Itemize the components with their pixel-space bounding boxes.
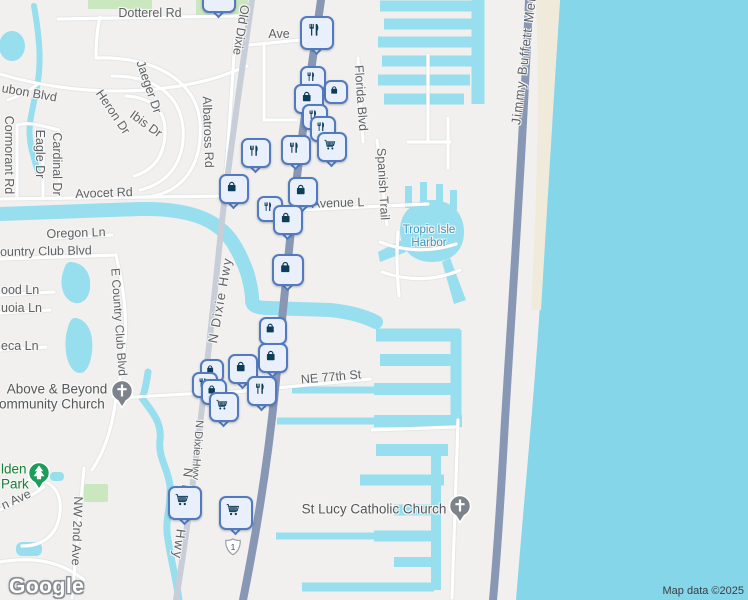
poi-marker-restaurant[interactable]: [241, 138, 271, 168]
marker-card: [273, 205, 303, 235]
marker-card: [209, 392, 239, 422]
waterways-left: [0, 6, 179, 600]
poi-marker-restaurant[interactable]: [247, 376, 277, 406]
church-cross-icon: [110, 396, 134, 413]
google-logo[interactable]: Google: [9, 575, 84, 599]
poi-marker-bag[interactable]: [288, 177, 318, 207]
marker-card: [241, 138, 271, 168]
poi-marker-restaurant[interactable]: [300, 16, 334, 50]
marker-card: [317, 132, 347, 162]
marker-card: [300, 16, 334, 50]
shopping-bag-icon: [225, 180, 244, 199]
pine-tree-icon: [27, 478, 51, 495]
svg-text:1: 1: [231, 542, 236, 552]
poi-marker-cart[interactable]: [219, 496, 253, 530]
restaurant-icon: [253, 382, 272, 401]
restaurant-icon: [247, 144, 266, 163]
marker-card: [247, 376, 277, 406]
poi-marker-bag[interactable]: [259, 317, 287, 345]
shopping-bag-icon: [278, 260, 298, 280]
marker-card: [219, 174, 249, 204]
shopping-bag-icon: [264, 322, 281, 339]
map-base-layer: [0, 0, 748, 600]
church-poi-pin[interactable]: [448, 494, 472, 529]
finger-canals-south: [276, 330, 462, 590]
shopping-bag-icon: [264, 349, 283, 368]
tropic-isle-harbor: [378, 182, 466, 304]
restaurant-icon: [306, 22, 328, 44]
central-canal: [0, 209, 376, 322]
marker-card: [168, 486, 202, 520]
restaurant-icon: [287, 141, 306, 160]
poi-marker-bag[interactable]: [324, 80, 348, 104]
poi-marker-cart[interactable]: [209, 392, 239, 422]
marker-card: [324, 80, 348, 104]
shopping-bag-icon: [294, 183, 313, 202]
marker-card: [258, 343, 288, 373]
marker-card: [272, 254, 304, 286]
marker-card: [259, 317, 287, 345]
restaurant-icon: [208, 0, 230, 7]
us-route-1-shield: 1: [224, 538, 242, 561]
poi-marker-bag[interactable]: [272, 254, 304, 286]
shopping-bag-icon: [329, 85, 343, 99]
shopping-cart-icon: [215, 398, 234, 417]
shopping-bag-icon: [279, 211, 298, 230]
church-cross-icon: [448, 511, 472, 528]
poi-marker-restaurant[interactable]: [281, 135, 311, 165]
shopping-cart-icon: [323, 138, 342, 157]
poi-marker-bag[interactable]: [219, 174, 249, 204]
poi-marker-bag[interactable]: [273, 205, 303, 235]
poi-marker-cart[interactable]: [317, 132, 347, 162]
church-poi-pin[interactable]: [110, 379, 134, 414]
poi-marker-cart[interactable]: [168, 486, 202, 520]
poi-marker-bag[interactable]: [258, 343, 288, 373]
map-canvas[interactable]: Dotterel RdAveOld DixieAlbatross RdFlori…: [0, 0, 748, 600]
marker-card: [219, 496, 253, 530]
shopping-cart-icon: [225, 502, 247, 524]
shopping-cart-icon: [174, 492, 196, 514]
poi-marker-restaurant[interactable]: [202, 0, 236, 13]
marker-card: [288, 177, 318, 207]
marker-card: [281, 135, 311, 165]
marker-card: [202, 0, 236, 13]
park-poi-pin[interactable]: [27, 461, 51, 496]
